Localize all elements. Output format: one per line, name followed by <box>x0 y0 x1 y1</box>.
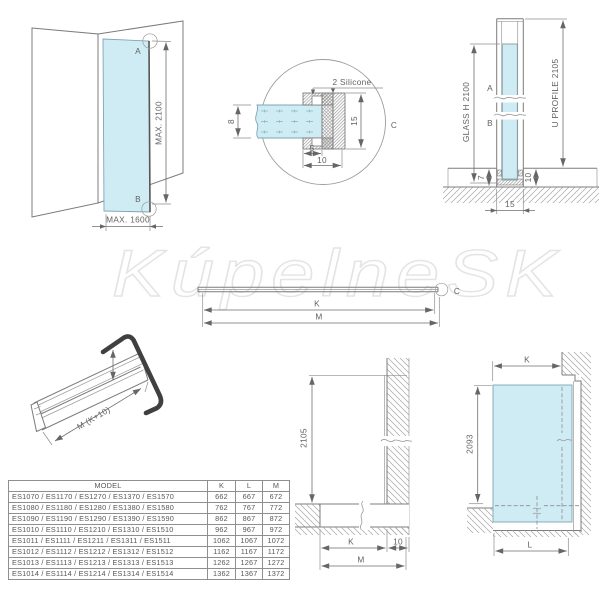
table-header-row: MODEL K L M <box>9 481 290 492</box>
end-clip-shape <box>103 336 161 413</box>
model-cell: ES1080 / ES1180 / ES1280 / ES1380 / ES15… <box>9 503 208 514</box>
header-model: MODEL <box>9 481 208 492</box>
k-cell: 1362 <box>208 569 236 580</box>
dim-m: M <box>357 555 364 565</box>
m-cell: 972 <box>263 525 290 536</box>
dim-l: L <box>528 540 533 550</box>
dim-k: K <box>348 537 354 547</box>
table-row: ES1012 / ES1112 / ES1212 / ES1312 / ES15… <box>9 547 290 558</box>
table-row: ES1011 / ES1111 / ES1211 / ES1311 / ES15… <box>9 536 290 547</box>
point-a-label: A <box>487 83 493 93</box>
wall-height-dim: 2105 <box>299 428 309 448</box>
dim-15: 15 <box>505 199 515 209</box>
m-cell: 672 <box>263 492 290 503</box>
point-b-label: B <box>487 118 493 128</box>
m-cell: 1272 <box>263 558 290 569</box>
dim-10: 10 <box>393 537 403 547</box>
m-cell: 872 <box>263 514 290 525</box>
max-width-dim: MAX. 1600 <box>106 215 150 225</box>
front-elevation-view: K 2093 L <box>465 352 592 556</box>
max-height-dim: MAX. 2100 <box>154 101 164 145</box>
l-cell: 767 <box>236 503 263 514</box>
glass-thickness-dim: 8 <box>226 119 236 124</box>
l-cell: 867 <box>236 514 263 525</box>
m-cell: 1072 <box>263 536 290 547</box>
silicone-label: 2 Silicone <box>333 77 372 87</box>
k-cell: 762 <box>208 503 236 514</box>
u-profile-height-dim: U PROFILE 2105 <box>550 59 560 128</box>
glass-height-dim: GLASS H 2100 <box>461 82 471 142</box>
model-cell: ES1090 / ES1190 / ES1290 / ES1390 / ES15… <box>9 514 208 525</box>
model-table: MODEL K L M ES1070 / ES1170 / ES1270 / E… <box>8 480 290 580</box>
glass-height-dim: 2093 <box>465 434 475 454</box>
table-row: ES1070 / ES1170 / ES1270 / ES1370 / ES15… <box>9 492 290 503</box>
m-cell: 772 <box>263 503 290 514</box>
model-cell: ES1014 / ES1114 / ES1214 / ES1314 / ES15… <box>9 569 208 580</box>
table-row: ES1014 / ES1114 / ES1214 / ES1314 / ES15… <box>9 569 290 580</box>
technical-drawing-sheet: KúpelneSK A B MAX. 2100 MAX. 1600 <box>0 0 600 600</box>
watermark-text: KúpelneSK <box>112 236 564 310</box>
table-row: ES1080 / ES1180 / ES1280 / ES1380 / ES15… <box>9 503 290 514</box>
dim-m: M <box>315 312 322 322</box>
l-cell: 1167 <box>236 547 263 558</box>
k-cell: 1262 <box>208 558 236 569</box>
model-cell: ES1013 / ES1113 / ES1213 / ES1313 / ES15… <box>9 558 208 569</box>
m-cell: 1372 <box>263 569 290 580</box>
detail-view-c: 2 Silicone 8 15 5 10 C <box>226 60 397 185</box>
iso-length-dim: M (K+10) <box>75 404 112 431</box>
wall-section-view: 2105 K 10 M <box>295 358 412 570</box>
point-a-label: A <box>135 46 141 56</box>
detail-c-label: C <box>391 120 397 130</box>
header-k: K <box>208 481 236 492</box>
profile-height-dim: 15 <box>349 116 359 126</box>
l-cell: 967 <box>236 525 263 536</box>
point-b-label: B <box>135 194 141 204</box>
dim-k: K <box>314 299 320 309</box>
table-row: ES1010 / ES1110 / ES1210 / ES1310 / ES15… <box>9 525 290 536</box>
side-view: A B GLASS H 2100 U PROFILE 2105 7 10 15 <box>443 19 599 214</box>
l-cell: 1367 <box>236 569 263 580</box>
model-cell: ES1070 / ES1170 / ES1270 / ES1370 / ES15… <box>9 492 208 503</box>
dim-10: 10 <box>523 173 533 183</box>
model-cell: ES1011 / ES1111 / ES1211 / ES1311 / ES15… <box>9 536 208 547</box>
k-cell: 862 <box>208 514 236 525</box>
model-cell: ES1010 / ES1110 / ES1210 / ES1310 / ES15… <box>9 525 208 536</box>
table-row: ES1013 / ES1113 / ES1213 / ES1313 / ES15… <box>9 558 290 569</box>
table-row: ES1090 / ES1190 / ES1290 / ES1390 / ES15… <box>9 514 290 525</box>
header-m: M <box>263 481 290 492</box>
l-cell: 1267 <box>236 558 263 569</box>
bar-detail-c-label: C <box>454 286 460 296</box>
k-cell: 662 <box>208 492 236 503</box>
header-l: L <box>236 481 263 492</box>
outer-depth-dim: 10 <box>317 155 327 165</box>
dim-7: 7 <box>476 175 486 180</box>
dim-k: K <box>524 355 530 365</box>
k-cell: 1062 <box>208 536 236 547</box>
l-cell: 667 <box>236 492 263 503</box>
iso-profile-view: M (K+10) <box>31 336 161 445</box>
m-cell: 1172 <box>263 547 290 558</box>
l-cell: 1067 <box>236 536 263 547</box>
k-cell: 1162 <box>208 547 236 558</box>
inner-depth-dim: 5 <box>310 143 315 153</box>
panel-view: A B MAX. 2100 MAX. 1600 <box>32 21 183 231</box>
k-cell: 962 <box>208 525 236 536</box>
model-cell: ES1012 / ES1112 / ES1212 / ES1312 / ES15… <box>9 547 208 558</box>
